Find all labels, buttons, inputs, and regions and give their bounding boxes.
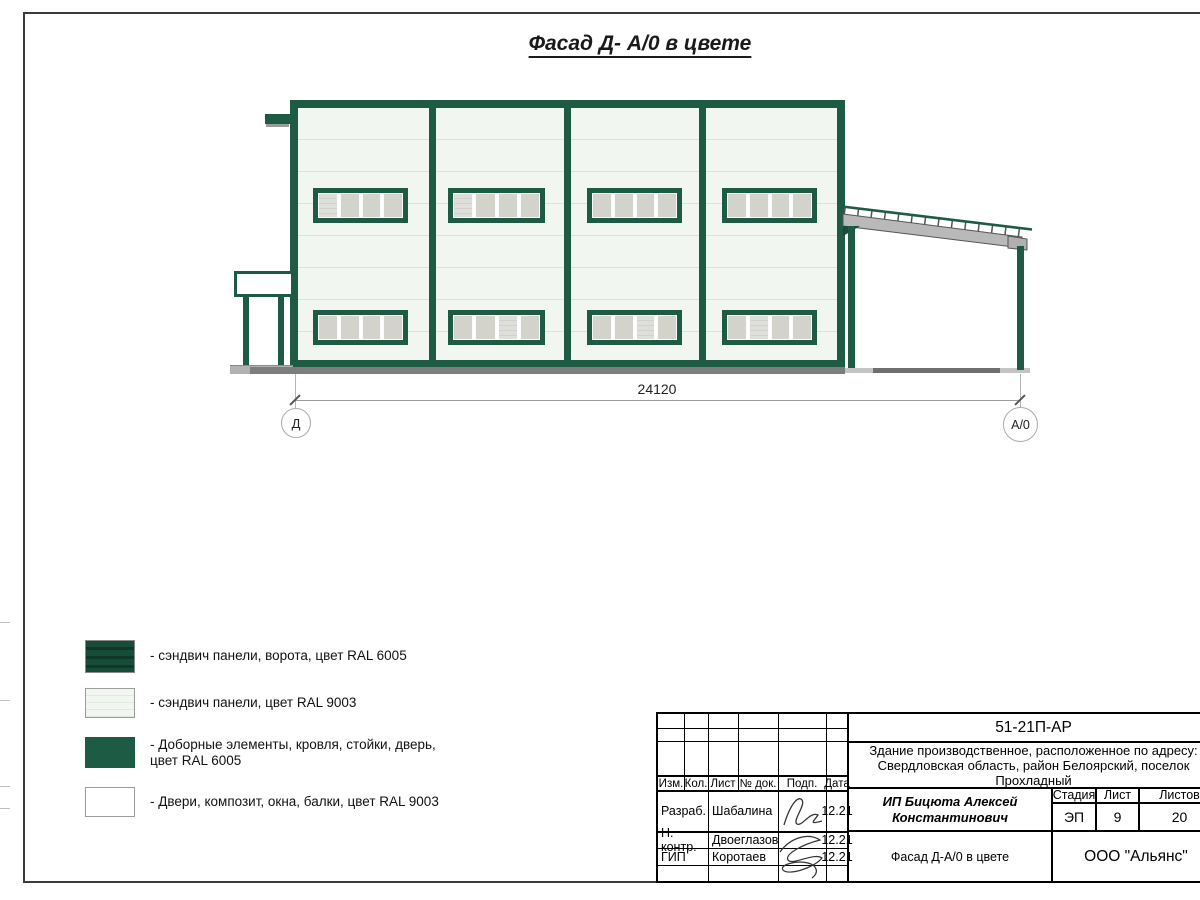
window bbox=[587, 310, 682, 345]
legend-swatch-solid-green bbox=[85, 737, 135, 768]
tb-role: Н. контр. bbox=[661, 832, 708, 848]
dimension-value: 24120 bbox=[590, 381, 724, 397]
page-title-text: Фасад Д- А/0 в цвете bbox=[529, 32, 752, 55]
tb-sheet-header: Лист bbox=[1097, 788, 1138, 802]
tb-col-doc: № док. bbox=[738, 776, 778, 791]
window bbox=[448, 310, 545, 345]
building-mullion bbox=[564, 108, 571, 360]
canopy-post bbox=[278, 297, 284, 367]
entrance-canopy bbox=[234, 271, 294, 297]
tb-doc-number: 51-21П-АР bbox=[848, 714, 1200, 741]
legend-label: - сэндвич панели, цвет RAL 9003 bbox=[150, 695, 450, 711]
tb-sheet-value: 9 bbox=[1097, 803, 1138, 830]
tb-sheet-title: Фасад Д-А/0 в цвете bbox=[848, 832, 1052, 881]
axis-marker-left-label: Д bbox=[292, 416, 301, 431]
tb-name: Шабалина bbox=[712, 791, 778, 831]
left-margin-mark bbox=[0, 700, 10, 701]
legend-label: - сэндвич панели, ворота, цвет RAL 6005 bbox=[150, 648, 450, 664]
tb-company: ООО "Альянс" bbox=[1053, 832, 1200, 881]
frame-top bbox=[23, 12, 1200, 14]
tb-col-izm: Изм. bbox=[658, 776, 684, 791]
left-margin-mark bbox=[0, 622, 10, 623]
window bbox=[448, 188, 545, 223]
building-mullion bbox=[699, 108, 706, 360]
window bbox=[313, 188, 408, 223]
tb-sheets-header: Листов bbox=[1140, 788, 1200, 802]
canopy-post bbox=[243, 297, 249, 367]
title-block: Изм. Кол. Лист № док. Подп. Дата Разраб.… bbox=[656, 712, 1200, 883]
window bbox=[313, 310, 408, 345]
legend-swatch-light-panels bbox=[85, 688, 135, 718]
tb-date: 12.21 bbox=[824, 791, 850, 831]
window bbox=[587, 188, 682, 223]
left-margin-mark bbox=[0, 808, 10, 809]
signature bbox=[780, 793, 826, 831]
roof-edge-element bbox=[265, 114, 291, 124]
axis-marker-right-label: А/0 bbox=[1011, 418, 1030, 432]
signature bbox=[774, 830, 828, 882]
tb-date: 12.21 bbox=[824, 849, 850, 865]
frame-left bbox=[23, 12, 25, 883]
tb-col-list: Лист bbox=[708, 776, 738, 791]
left-margin-mark bbox=[0, 786, 10, 787]
tb-col-podp: Подп. bbox=[778, 776, 826, 791]
page-title: Фасад Д- А/0 в цвете bbox=[400, 32, 880, 56]
tb-object: Здание производственное, расположенное п… bbox=[850, 743, 1200, 787]
legend-label: - Двери, композит, окна, балки, цвет RAL… bbox=[150, 794, 450, 810]
drawing-sheet: { "page": { "title": "Фасад Д- А/0 в цве… bbox=[0, 0, 1200, 900]
tb-col-kol: Кол. bbox=[684, 776, 708, 791]
tb-sheets-value: 20 bbox=[1140, 803, 1200, 830]
window bbox=[722, 310, 817, 345]
ground-line bbox=[250, 367, 845, 374]
legend-swatch-gates bbox=[85, 640, 135, 673]
legend-label: - Доборные элементы, кровля, стойки, две… bbox=[150, 737, 440, 769]
window bbox=[722, 188, 817, 223]
axis-marker-right: А/0 bbox=[1003, 407, 1038, 442]
tb-role: Разраб. bbox=[661, 791, 708, 831]
tb-name: Коротаев bbox=[712, 849, 778, 865]
building-mullion bbox=[429, 108, 436, 360]
axis-marker-left: Д bbox=[281, 408, 311, 438]
tb-stage-header: Стадия bbox=[1053, 788, 1095, 802]
tb-name: Двоеглазов bbox=[712, 832, 778, 848]
tb-role: ГИП bbox=[661, 849, 708, 865]
dimension-line bbox=[295, 400, 1021, 401]
tb-stage-value: ЭП bbox=[1053, 803, 1095, 830]
tb-client: ИП Бицюта Алексей Константинович bbox=[858, 789, 1042, 830]
tb-col-data: Дата bbox=[826, 776, 848, 791]
leanto-canopy bbox=[840, 200, 1040, 372]
legend-swatch-white bbox=[85, 787, 135, 817]
tb-date: 12.21 bbox=[824, 832, 850, 848]
roof-edge-shadow bbox=[266, 124, 289, 127]
